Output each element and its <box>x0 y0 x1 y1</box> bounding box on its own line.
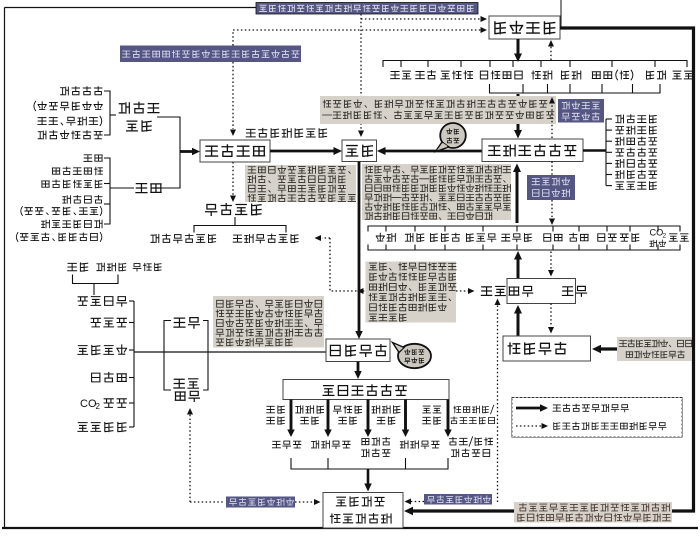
svg-text:2: 2 <box>663 233 667 240</box>
svg-text:CO: CO <box>80 398 97 410</box>
svg-text:2: 2 <box>96 402 101 411</box>
svg-text:CO: CO <box>650 228 664 238</box>
